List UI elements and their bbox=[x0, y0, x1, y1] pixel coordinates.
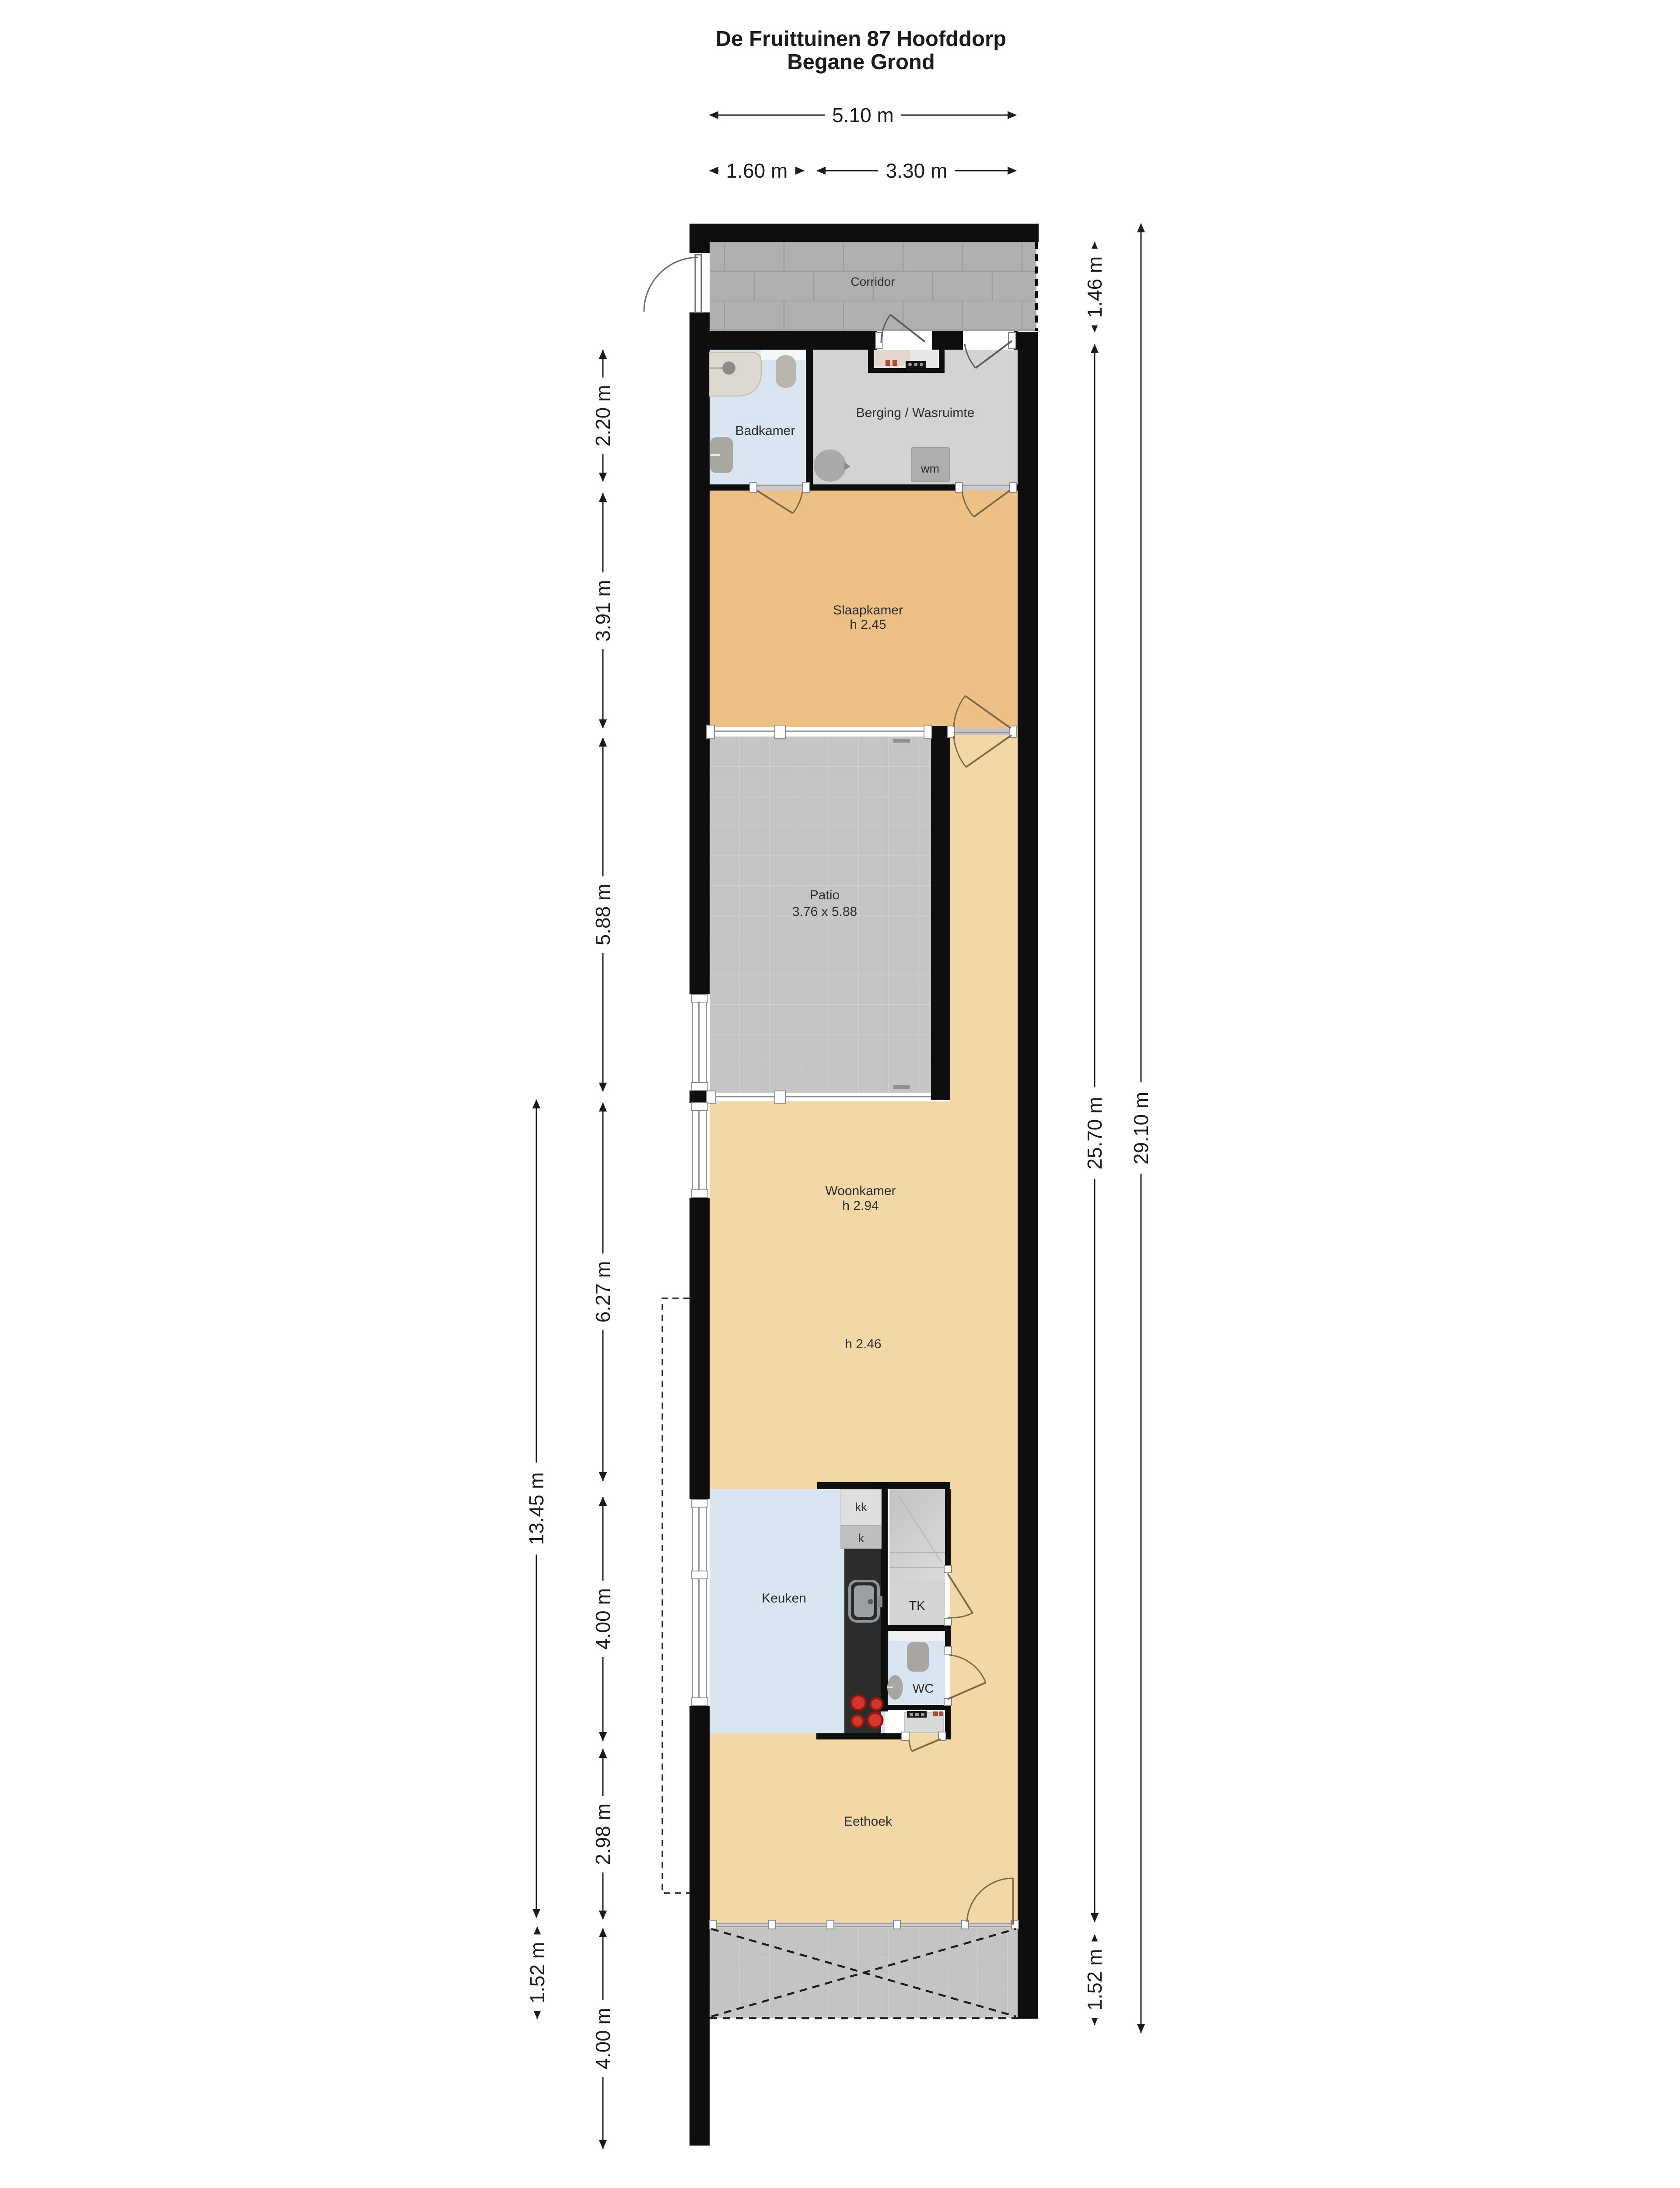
svg-text:h 2.46: h 2.46 bbox=[845, 1337, 881, 1351]
svg-text:WC: WC bbox=[913, 1682, 934, 1696]
svg-text:2.98 m: 2.98 m bbox=[591, 1803, 614, 1865]
svg-text:1.52 m: 1.52 m bbox=[1083, 1949, 1106, 2011]
svg-text:3.30 m: 3.30 m bbox=[886, 159, 948, 182]
svg-text:Eethoek: Eethoek bbox=[844, 1814, 892, 1829]
svg-text:2.20 m: 2.20 m bbox=[591, 385, 614, 447]
svg-text:h 2.94: h 2.94 bbox=[842, 1199, 878, 1213]
svg-text:Corridor: Corridor bbox=[850, 275, 895, 288]
svg-text:Begane Grond: Begane Grond bbox=[787, 50, 935, 74]
svg-text:TK: TK bbox=[909, 1599, 925, 1613]
svg-text:kk: kk bbox=[855, 1501, 868, 1514]
svg-text:De Fruittuinen 87 Hoofddorp: De Fruittuinen 87 Hoofddorp bbox=[716, 27, 1006, 51]
svg-text:4.00 m: 4.00 m bbox=[591, 2008, 614, 2069]
svg-text:29.10 m: 29.10 m bbox=[1130, 1092, 1152, 1164]
svg-text:k: k bbox=[858, 1532, 864, 1545]
svg-text:4.00 m: 4.00 m bbox=[591, 1588, 614, 1650]
svg-text:Woonkamer: Woonkamer bbox=[825, 1184, 896, 1198]
svg-text:Badkamer: Badkamer bbox=[735, 424, 795, 438]
svg-text:Keuken: Keuken bbox=[762, 1591, 806, 1606]
svg-text:3.91 m: 3.91 m bbox=[591, 580, 614, 642]
svg-text:5.10 m: 5.10 m bbox=[832, 104, 894, 126]
svg-text:1.52 m: 1.52 m bbox=[526, 1942, 549, 2004]
svg-text:h 2.45: h 2.45 bbox=[850, 617, 886, 632]
svg-text:13.45 m: 13.45 m bbox=[525, 1472, 548, 1545]
svg-text:Berging / Wasruimte: Berging / Wasruimte bbox=[856, 406, 975, 420]
svg-text:Patio: Patio bbox=[810, 888, 840, 902]
svg-text:25.70 m: 25.70 m bbox=[1083, 1097, 1106, 1169]
svg-text:wm: wm bbox=[920, 462, 939, 475]
svg-text:Slaapkamer: Slaapkamer bbox=[833, 603, 903, 617]
svg-text:3.76 x 5.88: 3.76 x 5.88 bbox=[792, 905, 857, 919]
svg-text:1.60 m: 1.60 m bbox=[726, 159, 788, 182]
svg-text:6.27 m: 6.27 m bbox=[591, 1261, 614, 1323]
svg-text:1.46 m: 1.46 m bbox=[1083, 256, 1106, 318]
svg-text:5.88 m: 5.88 m bbox=[591, 884, 614, 946]
